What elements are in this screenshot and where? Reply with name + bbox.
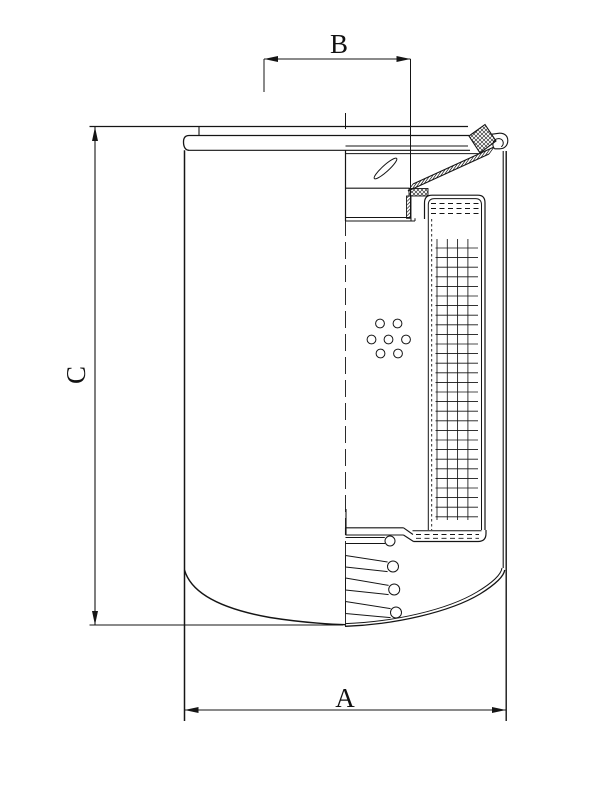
dimension-c-group: C [61, 127, 343, 625]
boss-bottom-lines [346, 218, 416, 222]
bypass-hole [376, 319, 385, 328]
thread-boss [346, 150, 429, 221]
flange-left-corner [184, 136, 190, 151]
bypass-hole [393, 319, 402, 328]
dome-bottom-right-outer [346, 570, 505, 626]
dim-label-c: C [61, 366, 91, 384]
spring-seat-plate [346, 528, 414, 542]
drawing-page: B C A [0, 0, 612, 792]
spring-coil-2 [388, 561, 399, 572]
bypass-hole [402, 335, 411, 344]
spring-group [346, 509, 414, 618]
bypass-holes [367, 319, 410, 358]
bypass-hole [394, 349, 403, 358]
top-end-cap-outer [425, 195, 486, 530]
spring-coil-4 [391, 607, 402, 618]
dim-label-a: A [335, 683, 355, 713]
spring-coil-1 [385, 536, 395, 546]
technical-drawing: B C A [0, 0, 612, 792]
canister-outline [90, 127, 507, 722]
dome-bottom-left [185, 570, 346, 625]
media-grid [436, 239, 479, 520]
spring-coil-1-lines [346, 538, 386, 544]
seam-curl-inner [493, 139, 503, 149]
dim-label-b: B [330, 29, 348, 59]
bottom-end-cap-outer [414, 530, 487, 542]
bypass-hole [384, 335, 393, 344]
spring-coil-2-lines [346, 556, 388, 572]
dimension-a-group: A [185, 683, 507, 713]
seal-gasket [469, 125, 496, 154]
boss-seal-washer [409, 189, 428, 197]
bypass-hole [367, 335, 376, 344]
spring-coil-3 [389, 584, 400, 595]
seal-gasket-group [469, 125, 508, 154]
boss-wall-hatched [407, 196, 412, 218]
filter-element [413, 195, 487, 541]
spring-coil-3-lines [346, 578, 389, 595]
spring-coil-4-lines [346, 602, 391, 618]
bottom-end-cap-adhesive-dashes [416, 535, 479, 539]
thread-ellipse [372, 156, 399, 181]
top-end-cap-adhesive-dashes [431, 204, 480, 214]
bypass-hole [376, 349, 385, 358]
dimension-b-group: B [264, 29, 411, 218]
